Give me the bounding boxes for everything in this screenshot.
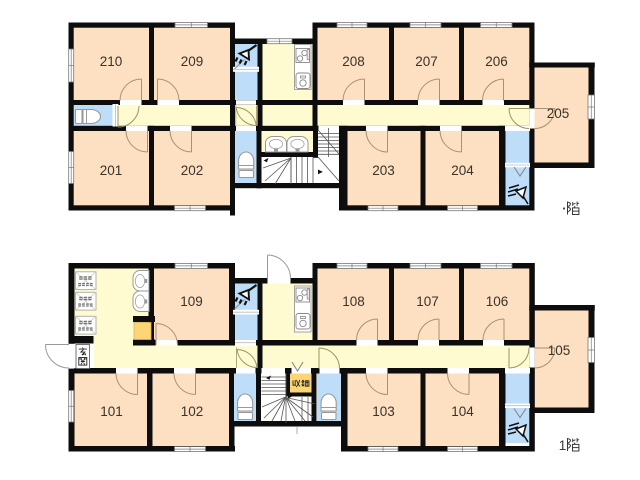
svg-text:104: 104: [451, 404, 474, 419]
svg-text:109: 109: [180, 294, 203, 309]
svg-text:210: 210: [100, 54, 123, 69]
svg-text:201: 201: [100, 163, 123, 178]
svg-text:209: 209: [181, 54, 204, 69]
svg-text:103: 103: [372, 404, 395, 419]
svg-text:202: 202: [181, 163, 204, 178]
svg-text:101: 101: [100, 404, 123, 419]
svg-text:1: 1: [559, 438, 567, 453]
svg-text:204: 204: [451, 163, 474, 178]
svg-text:108: 108: [342, 294, 365, 309]
svg-text:207: 207: [415, 54, 438, 69]
svg-text:208: 208: [342, 54, 365, 69]
svg-text:203: 203: [372, 163, 395, 178]
svg-text:206: 206: [485, 54, 508, 69]
svg-text:205: 205: [547, 106, 570, 121]
svg-text:106: 106: [486, 294, 509, 309]
svg-text:102: 102: [181, 404, 204, 419]
svg-text:105: 105: [548, 343, 571, 358]
svg-text:107: 107: [416, 294, 439, 309]
